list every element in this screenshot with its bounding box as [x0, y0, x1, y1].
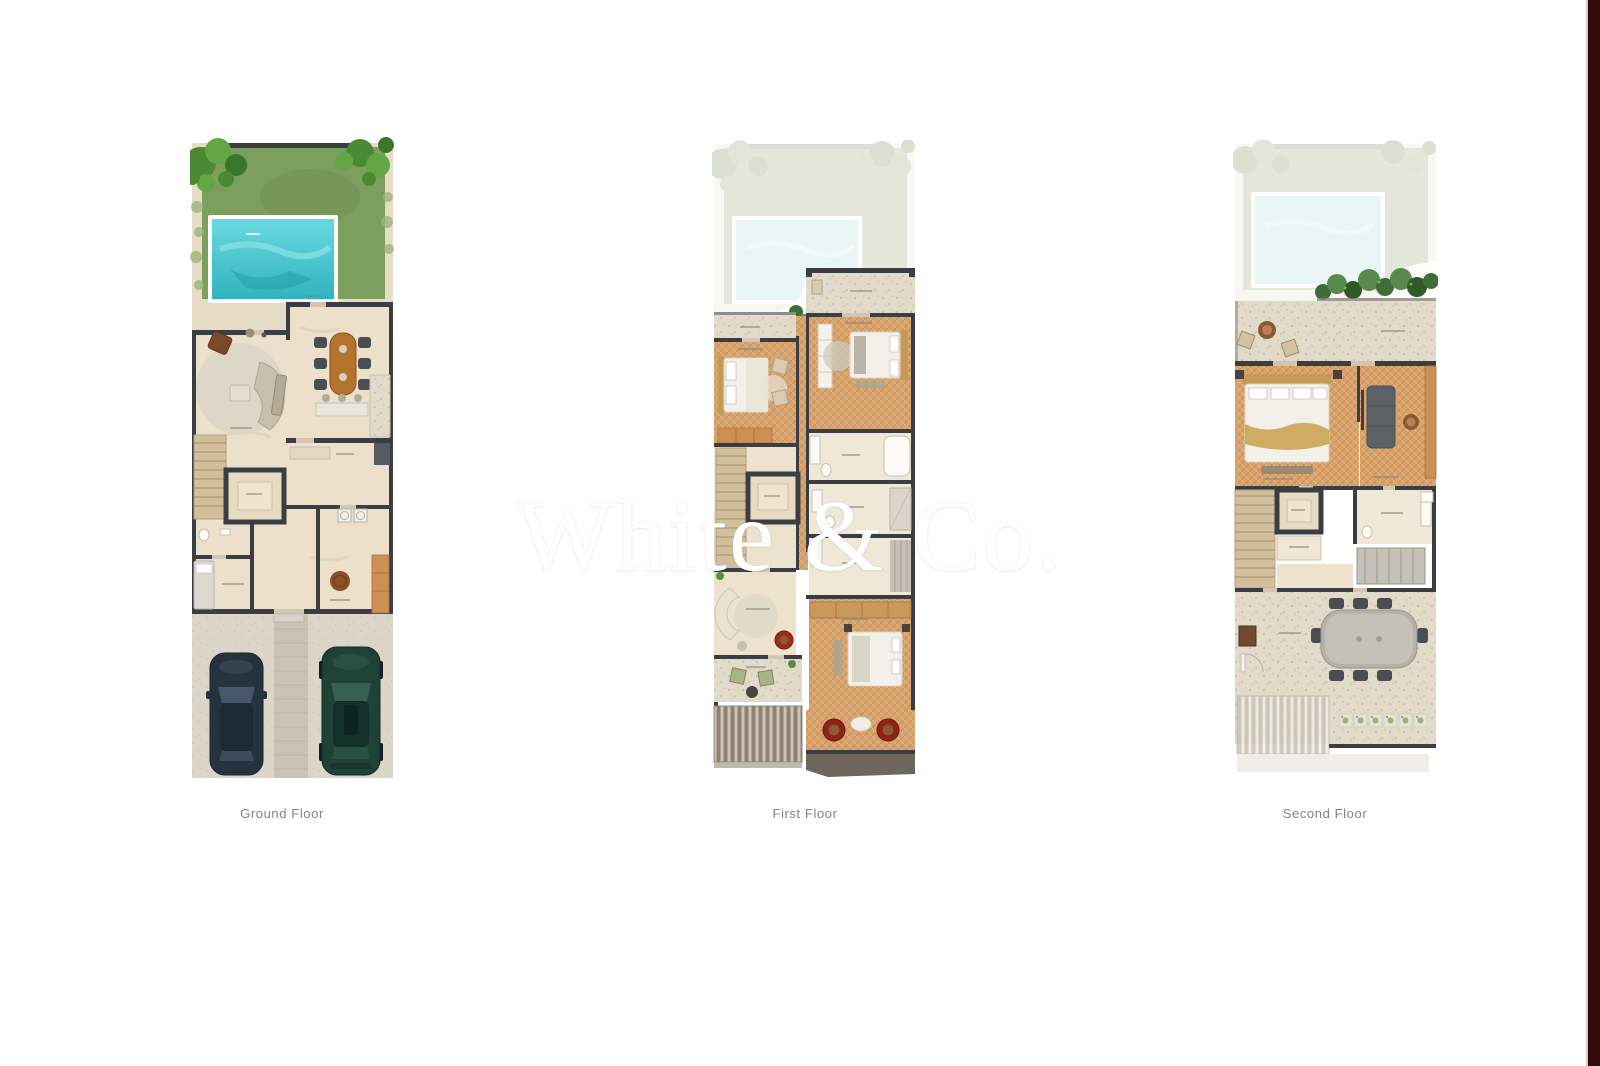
pergola-louvers: [1237, 696, 1329, 754]
first-floor-plan: [712, 140, 917, 777]
balcony: [714, 655, 802, 702]
car-green: [319, 647, 383, 775]
ground-shadow: [806, 754, 915, 777]
master-bedroom: [1235, 366, 1360, 486]
car-navy: [206, 653, 267, 775]
bedroom2: [714, 312, 796, 447]
mid-walls: [1235, 486, 1436, 490]
wc-room: [226, 470, 284, 522]
watermark: White & Co.: [517, 478, 1063, 595]
floor-label-ground: Ground Floor: [240, 806, 324, 821]
stairs: [194, 435, 226, 519]
second-floor-plan-graphic: [1233, 140, 1438, 780]
pool: [208, 215, 338, 303]
ground-floor-plan: [190, 137, 395, 778]
lounge: [1360, 366, 1436, 486]
right-accent-strip: [1588, 0, 1600, 1066]
bedroom3: [806, 595, 915, 710]
bedroom1-balcony: [806, 268, 915, 316]
bottom-wall: [1329, 744, 1436, 748]
ground-floor-plan-graphic: [190, 137, 395, 778]
floor-label-first: First Floor: [772, 806, 837, 821]
stairs: [1235, 490, 1275, 588]
upper-roof-terrace: [1235, 301, 1436, 361]
terrace-red-chairs: [806, 710, 915, 754]
floorplan-sheet: Ground Floor First Floor Second Floor Wh…: [0, 0, 1600, 1066]
closets: [1277, 490, 1321, 560]
ghost-bottom: [1237, 754, 1429, 772]
first-floor-plan-graphic: [712, 140, 917, 777]
pergola-louvers: [714, 706, 802, 768]
bedroom1: [806, 313, 915, 429]
floor-label-second: Second Floor: [1283, 806, 1368, 821]
second-floor-plan: [1233, 140, 1438, 780]
